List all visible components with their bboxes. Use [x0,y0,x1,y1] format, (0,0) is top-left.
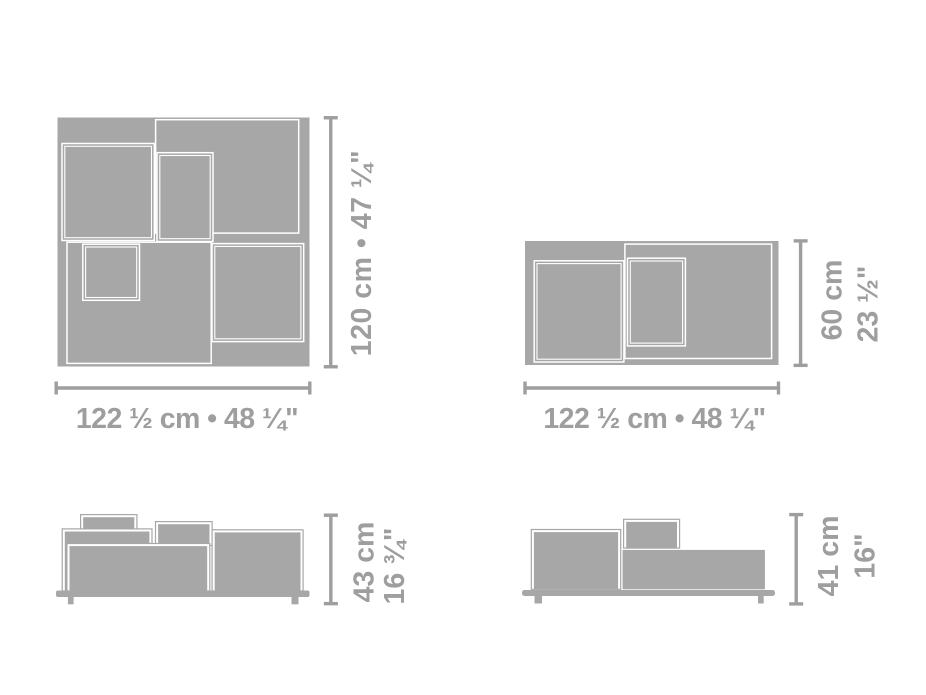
svg-text:16 ¾": 16 ¾" [379,528,411,605]
svg-text:120 cm • 47 ¼": 120 cm • 47 ¼" [346,150,378,356]
svg-text:41 cm: 41 cm [813,516,845,597]
svg-text:43 cm: 43 cm [348,522,380,603]
svg-text:16": 16" [850,533,882,578]
svg-text:122 ½ cm • 48 ¼": 122 ½ cm • 48 ¼" [76,403,298,435]
svg-text:122 ½ cm • 48 ¼": 122 ½ cm • 48 ¼" [543,403,765,435]
svg-text:23 ½": 23 ½" [853,266,885,343]
svg-text:60 cm: 60 cm [816,260,848,341]
